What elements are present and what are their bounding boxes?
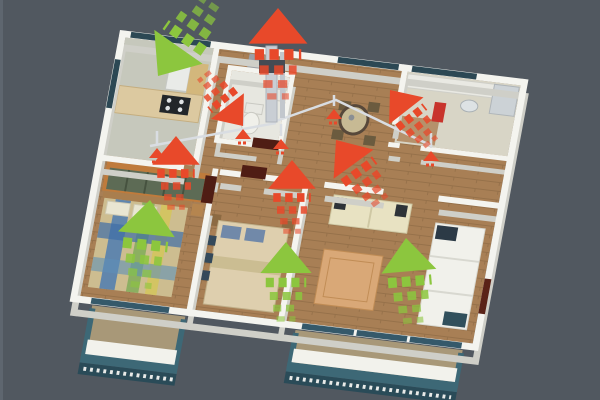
chair [363,135,376,146]
ventilation-floorplan-illustration [0,0,600,400]
cooktop [159,95,191,116]
pillow [244,228,265,243]
building [57,30,532,400]
pillow [105,201,130,216]
chair [331,129,344,140]
floorplan-svg [0,0,600,400]
pillow [220,225,241,240]
rug [314,249,383,310]
tv-unit [435,225,458,241]
appliance [489,84,519,116]
chair [367,102,380,113]
nightstand [191,203,205,216]
sofa-speaker [394,204,408,217]
background-edge-highlight [0,0,3,400]
laptop [442,311,467,327]
